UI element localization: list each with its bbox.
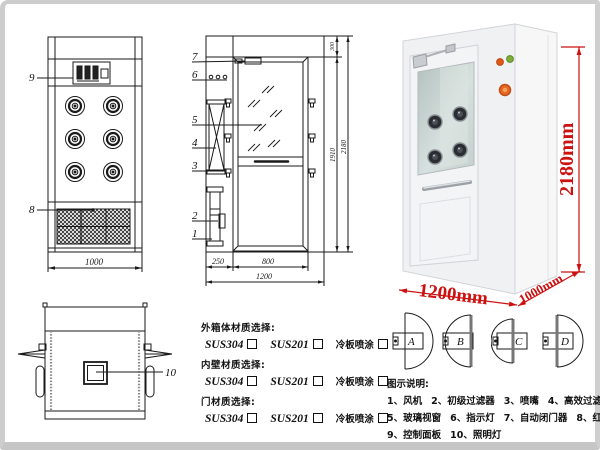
legend-item: 1、风机 xyxy=(387,396,422,407)
top-view-drawing: 10 xyxy=(15,299,185,434)
legend: 图示说明: 1、风机2、初级过滤器3、喷嘴4、高效过滤器 5、玻璃视窗6、指示灯… xyxy=(387,376,599,444)
material-option: SUS201 xyxy=(270,339,308,351)
right-handle xyxy=(146,366,154,397)
legend-item: 6、指示灯 xyxy=(450,413,495,424)
photo-height-label: 2180mm xyxy=(556,122,578,196)
legend-line: 1、风机2、初级过滤器3、喷嘴4、高效过滤器 xyxy=(387,393,599,407)
dim-2180: 2180 xyxy=(340,140,348,155)
door-option-C: C xyxy=(491,310,537,372)
front-view-drawing: 9 8 1000 xyxy=(19,32,184,282)
legend-item: 8、红外线感应器 xyxy=(576,413,600,424)
callout-3: 3 xyxy=(191,160,198,172)
fan-unit xyxy=(207,187,225,246)
glass-hatching xyxy=(248,86,282,151)
callout-7: 7 xyxy=(192,51,198,63)
hinge-arms xyxy=(18,344,172,358)
door-option-B: B xyxy=(441,310,487,372)
callout-9: 9 xyxy=(29,72,35,84)
callout-5: 5 xyxy=(192,114,198,126)
callout-10: 10 xyxy=(165,367,177,379)
material-option: SUS304 xyxy=(205,376,243,388)
legend-item: 10、照明灯 xyxy=(450,430,501,441)
svg-text:D: D xyxy=(560,336,569,348)
legend-line: 5、玻璃视窗6、指示灯7、自动闭门器8、红外线感应器 xyxy=(387,410,599,424)
material-option: 冷板喷涂 xyxy=(336,377,374,388)
dim-1000: 1000 xyxy=(85,257,104,267)
callout-2: 2 xyxy=(192,210,198,222)
legend-item: 7、自动闭门器 xyxy=(504,413,568,424)
callout-1: 1 xyxy=(192,228,198,240)
door-closer xyxy=(245,58,261,64)
door-option-D: D xyxy=(541,310,587,372)
door-section xyxy=(233,57,308,251)
side-view-drawing: 7 6 5 4 3 2 1 250 800 1200 300 1910 2180 xyxy=(190,29,365,294)
svg-text:C: C xyxy=(515,336,523,348)
legend-line: 9、控制面板10、照明灯 xyxy=(387,427,599,441)
material-option: SUS201 xyxy=(270,376,308,388)
callout-8: 8 xyxy=(29,204,35,216)
material-checkbox xyxy=(247,339,257,349)
material-option: 冷板喷涂 xyxy=(336,340,374,351)
material-checkbox xyxy=(313,339,323,349)
product-photo: 2180mm 1200mm 1000mm xyxy=(380,14,595,314)
material-selection: 外箱体材质选择: SUS304SUS201冷板喷涂 内壁材质选择: SUS304… xyxy=(201,320,386,431)
dim-300: 300 xyxy=(330,42,336,52)
spec-sheet-page: 9 8 1000 xyxy=(0,0,600,450)
photo-green-lamp xyxy=(507,56,514,63)
legend-item: 5、玻璃视窗 xyxy=(387,413,441,424)
material-option: SUS201 xyxy=(270,413,308,425)
cabinet-side-face xyxy=(515,24,557,294)
material-row-label: 门材质选择: xyxy=(201,394,386,408)
legend-item: 9、控制面板 xyxy=(387,430,441,441)
material-checkbox xyxy=(313,413,323,423)
indicator-lamps xyxy=(209,75,227,79)
material-option: 冷板喷涂 xyxy=(336,414,374,425)
dim-250: 250 xyxy=(212,257,224,266)
material-checkbox xyxy=(247,413,257,423)
nozzles-front xyxy=(66,97,123,182)
material-checkbox xyxy=(247,376,257,386)
legend-item: 2、初级过滤器 xyxy=(431,396,495,407)
filter-unit xyxy=(207,100,226,174)
door-option-A: A xyxy=(391,310,437,372)
door-swing-options: A B C xyxy=(391,310,587,374)
callout-4: 4 xyxy=(192,137,198,149)
material-row-options: SUS304SUS201冷板喷涂 xyxy=(205,337,386,351)
legend-item: 4、高效过滤器 xyxy=(548,396,600,407)
legend-title: 图示说明: xyxy=(387,376,599,390)
callout-6: 6 xyxy=(192,69,198,81)
material-row-options: SUS304SUS201冷板喷涂 xyxy=(205,374,386,388)
svg-text:A: A xyxy=(407,336,415,348)
legend-item: 3、喷嘴 xyxy=(504,396,539,407)
material-row-label: 外箱体材质选择: xyxy=(201,320,386,334)
left-handle xyxy=(36,366,44,397)
material-row-label: 内壁材质选择: xyxy=(201,357,386,371)
material-checkbox xyxy=(313,376,323,386)
dim-1200: 1200 xyxy=(256,272,272,281)
photo-red-lamp xyxy=(497,59,504,66)
dim-1910: 1910 xyxy=(329,148,337,163)
material-option: SUS304 xyxy=(205,339,243,351)
dim-800: 800 xyxy=(262,257,274,266)
material-checkbox xyxy=(378,339,388,349)
svg-text:B: B xyxy=(457,336,464,348)
material-option: SUS304 xyxy=(205,413,243,425)
material-row-options: SUS304SUS201冷板喷涂 xyxy=(205,411,386,425)
